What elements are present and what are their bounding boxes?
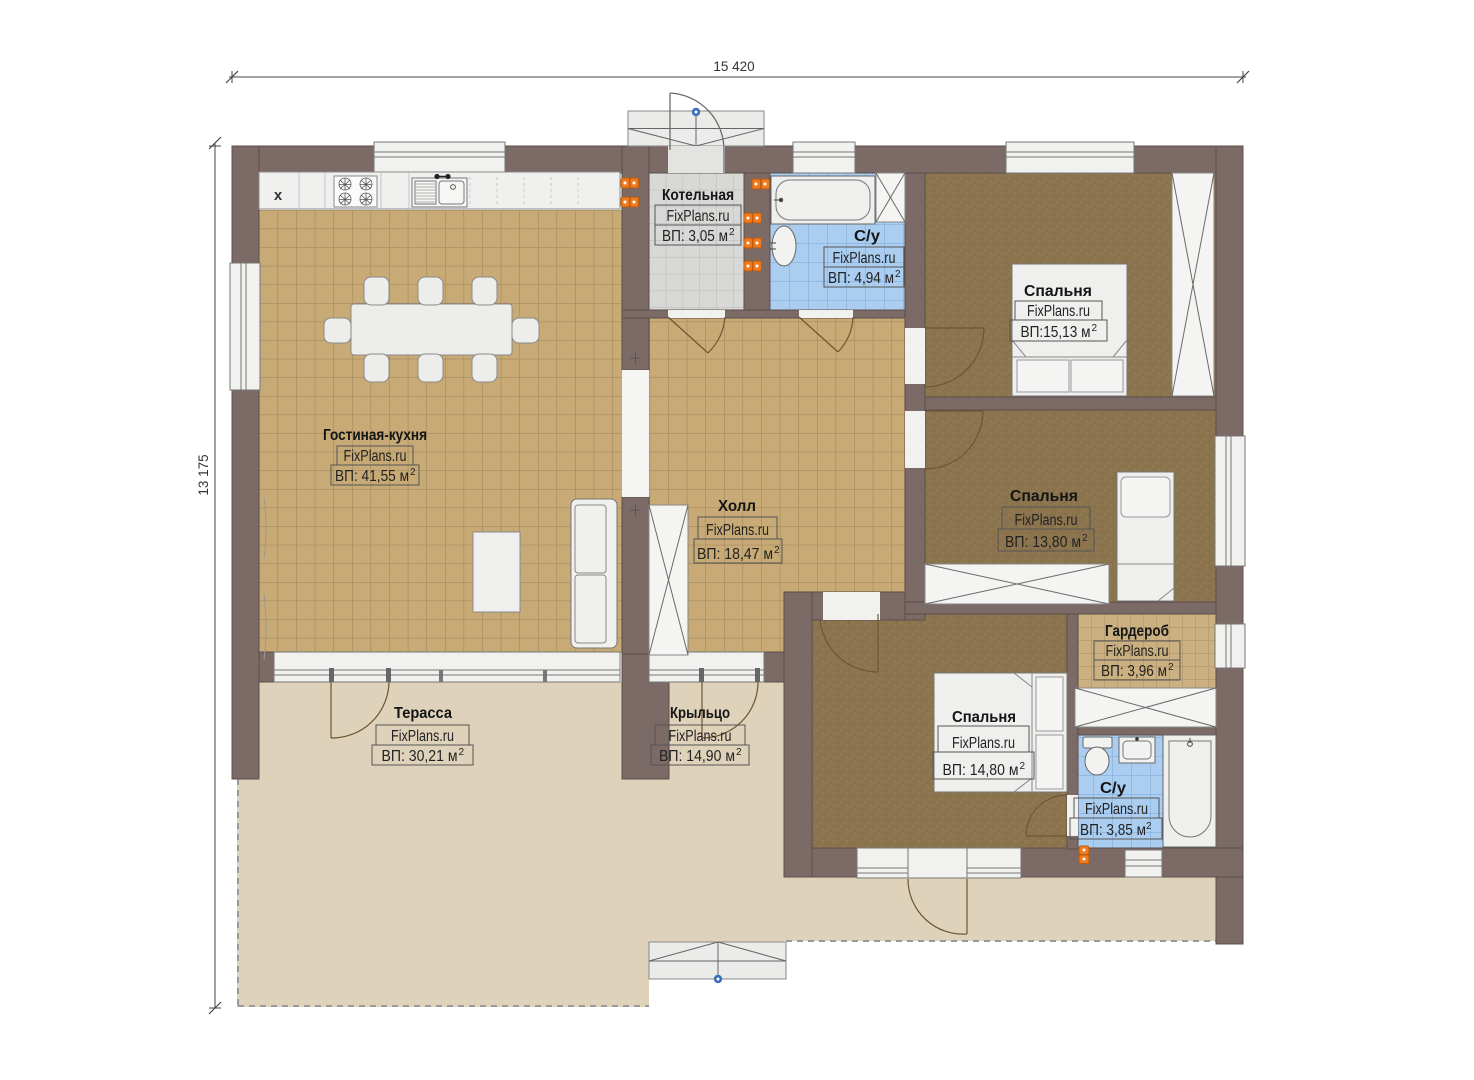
svg-text:ВП: 14,90 м: ВП: 14,90 м: [659, 748, 735, 765]
svg-text:ВП: 41,55 м: ВП: 41,55 м: [335, 468, 409, 485]
svg-text:2: 2: [1168, 662, 1174, 673]
svg-text:ВП: 18,47 м: ВП: 18,47 м: [697, 546, 773, 563]
svg-text:FixPlans.ru: FixPlans.ru: [391, 728, 454, 745]
svg-text:ВП: 13,80 м: ВП: 13,80 м: [1005, 534, 1081, 551]
svg-text:2: 2: [1020, 761, 1026, 772]
svg-text:Котельная: Котельная: [662, 187, 734, 204]
svg-text:FixPlans.ru: FixPlans.ru: [344, 448, 407, 465]
svg-text:FixPlans.ru: FixPlans.ru: [1015, 512, 1078, 529]
svg-text:Гостиная-кухня: Гостиная-кухня: [323, 427, 427, 444]
svg-text:2: 2: [729, 227, 735, 238]
svg-text:Спальня: Спальня: [1024, 283, 1092, 300]
svg-text:FixPlans.ru: FixPlans.ru: [1085, 801, 1148, 818]
svg-text:ВП: 3,85 м: ВП: 3,85 м: [1080, 822, 1146, 839]
svg-text:Спальня: Спальня: [1010, 488, 1078, 505]
svg-text:ВП: 3,05 м: ВП: 3,05 м: [662, 228, 728, 245]
svg-text:Гардероб: Гардероб: [1105, 623, 1169, 640]
svg-text:FixPlans.ru: FixPlans.ru: [1027, 303, 1090, 320]
svg-text:С/у: С/у: [854, 228, 880, 245]
svg-text:С/у: С/у: [1100, 780, 1126, 797]
svg-text:2: 2: [1092, 323, 1098, 334]
svg-text:2: 2: [1146, 821, 1152, 832]
svg-text:Холл: Холл: [718, 498, 756, 515]
svg-text:2: 2: [736, 747, 742, 758]
svg-text:FixPlans.ru: FixPlans.ru: [1106, 643, 1169, 660]
svg-text:FixPlans.ru: FixPlans.ru: [952, 735, 1015, 752]
svg-text:15 420: 15 420: [713, 59, 754, 74]
svg-text:2: 2: [410, 467, 416, 478]
svg-text:FixPlans.ru: FixPlans.ru: [706, 522, 769, 539]
svg-text:2: 2: [895, 269, 901, 280]
svg-text:ВП: 30,21 м: ВП: 30,21 м: [382, 748, 458, 765]
svg-text:x: x: [274, 187, 283, 204]
svg-text:FixPlans.ru: FixPlans.ru: [667, 208, 730, 225]
svg-text:FixPlans.ru: FixPlans.ru: [833, 250, 896, 267]
svg-text:Крыльцо: Крыльцо: [670, 705, 730, 722]
svg-text:ВП: 4,94 м: ВП: 4,94 м: [828, 270, 894, 287]
svg-text:FixPlans.ru: FixPlans.ru: [669, 728, 732, 745]
svg-text:ВП: 3,96 м: ВП: 3,96 м: [1101, 663, 1167, 680]
svg-text:Терасса: Терасса: [394, 705, 452, 722]
svg-text:ВП: 14,80 м: ВП: 14,80 м: [943, 762, 1019, 779]
svg-text:2: 2: [774, 545, 780, 556]
svg-text:13 175: 13 175: [196, 454, 211, 495]
svg-text:ВП:15,13 м: ВП:15,13 м: [1021, 324, 1091, 341]
svg-text:2: 2: [1082, 533, 1088, 544]
svg-text:Спальня: Спальня: [952, 709, 1016, 726]
svg-text:2: 2: [459, 747, 465, 758]
